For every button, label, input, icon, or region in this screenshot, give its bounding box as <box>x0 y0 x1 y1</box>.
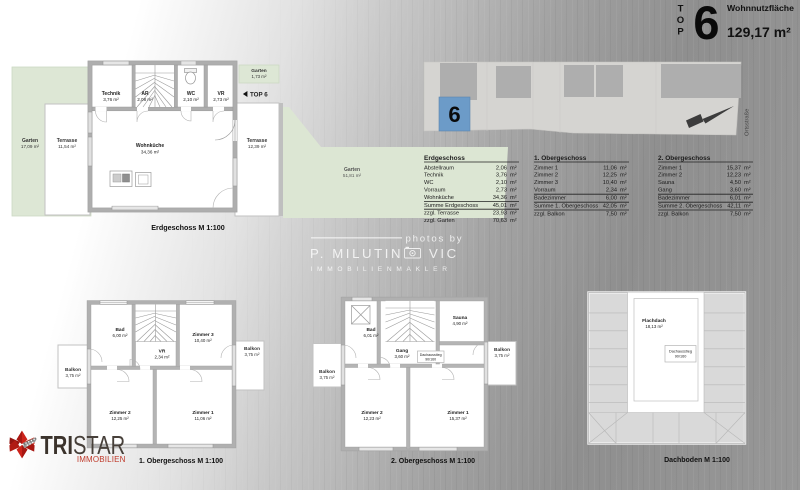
svg-text:18,13 m²: 18,13 m² <box>645 324 663 329</box>
svg-text:m²: m² <box>620 196 627 202</box>
svg-text:6,01: 6,01 <box>730 196 741 202</box>
svg-text:m²: m² <box>510 195 517 201</box>
svg-text:m²: m² <box>510 165 517 171</box>
svg-text:WC: WC <box>424 180 433 186</box>
svg-text:m²: m² <box>744 180 751 186</box>
svg-text:12,25 m²: 12,25 m² <box>111 416 129 421</box>
svg-text:11,06: 11,06 <box>603 165 617 171</box>
svg-text:P. MILUTIN: P. MILUTIN <box>310 246 403 261</box>
svg-text:42,05: 42,05 <box>603 204 617 210</box>
svg-text:m²: m² <box>510 173 517 179</box>
svg-text:2,34 m²: 2,34 m² <box>155 355 170 360</box>
svg-text:3,75 m²: 3,75 m² <box>495 353 510 358</box>
svg-text:7,50: 7,50 <box>606 211 617 217</box>
svg-text:Erdgeschoss: Erdgeschoss <box>424 155 465 162</box>
svg-text:m²: m² <box>744 211 751 217</box>
svg-text:51,81 m²: 51,81 m² <box>343 173 362 178</box>
svg-text:10,40 m²: 10,40 m² <box>194 338 212 343</box>
svg-text:IMMOBILIENMAKLER: IMMOBILIENMAKLER <box>311 266 452 273</box>
svg-text:15,37 m²: 15,37 m² <box>449 416 467 421</box>
svg-text:Badezimmer: Badezimmer <box>534 196 566 202</box>
svg-text:90/160: 90/160 <box>425 358 436 362</box>
svg-text:10,40: 10,40 <box>603 180 617 186</box>
svg-text:m²: m² <box>744 188 751 194</box>
svg-text:2,08 m²: 2,08 m² <box>137 97 153 102</box>
svg-text:6,01 m²: 6,01 m² <box>364 333 379 338</box>
svg-text:m²: m² <box>744 173 751 179</box>
svg-text:m²: m² <box>620 211 627 217</box>
svg-text:VIC: VIC <box>429 246 459 261</box>
svg-text:Zimmer 1: Zimmer 1 <box>658 165 682 171</box>
svg-text:11,54 m²: 11,54 m² <box>58 144 76 149</box>
svg-text:3,75 m²: 3,75 m² <box>66 373 81 378</box>
svg-text:12,23 m²: 12,23 m² <box>363 416 381 421</box>
svg-text:Wohnküche: Wohnküche <box>424 195 454 201</box>
svg-text:45,01: 45,01 <box>493 203 507 209</box>
svg-text:6,00: 6,00 <box>606 196 617 202</box>
svg-text:3,76 m²: 3,76 m² <box>103 97 119 102</box>
svg-text:129,17 m²: 129,17 m² <box>727 24 791 40</box>
svg-text:Dachausstieg: Dachausstieg <box>669 350 692 354</box>
svg-text:zzgl. Balkon: zzgl. Balkon <box>534 211 565 217</box>
svg-text:O: O <box>677 15 684 26</box>
svg-text:Summe 1. Obergeschoss: Summe 1. Obergeschoss <box>534 204 598 210</box>
svg-text:6: 6 <box>693 0 719 49</box>
svg-text:23,93: 23,93 <box>493 211 507 217</box>
svg-text:Summe Erdgeschoss: Summe Erdgeschoss <box>424 203 478 209</box>
svg-text:6,00 m²: 6,00 m² <box>113 333 128 338</box>
svg-text:2,73: 2,73 <box>496 188 507 194</box>
svg-text:m²: m² <box>744 165 751 171</box>
svg-text:3,60: 3,60 <box>730 188 741 194</box>
svg-text:1. Obergeschoss M 1:100: 1. Obergeschoss M 1:100 <box>139 458 223 465</box>
svg-text:34,36: 34,36 <box>493 195 507 201</box>
svg-text:Abstellraum: Abstellraum <box>424 165 454 171</box>
svg-text:2,10: 2,10 <box>496 180 507 186</box>
svg-text:Vorraum: Vorraum <box>534 188 556 194</box>
svg-text:Ortsstraße: Ortsstraße <box>745 109 751 136</box>
svg-text:6: 6 <box>448 102 460 127</box>
svg-text:m²: m² <box>510 218 517 224</box>
svg-text:Zimmer 3: Zimmer 3 <box>534 180 558 186</box>
svg-text:12,25: 12,25 <box>603 173 617 179</box>
svg-text:1. Obergeschoss: 1. Obergeschoss <box>534 155 587 162</box>
svg-text:m²: m² <box>744 196 751 202</box>
svg-text:m²: m² <box>510 180 517 186</box>
svg-text:17,09 m²: 17,09 m² <box>21 144 40 149</box>
svg-text:3,60 m²: 3,60 m² <box>395 354 410 359</box>
svg-text:Gang: Gang <box>658 188 672 194</box>
svg-text:4,90 m²: 4,90 m² <box>453 321 468 326</box>
svg-text:2. Obergeschoss M 1:100: 2. Obergeschoss M 1:100 <box>391 458 475 465</box>
svg-text:3,75 m²: 3,75 m² <box>245 352 260 357</box>
svg-text:2,06: 2,06 <box>496 165 507 171</box>
svg-text:m²: m² <box>510 188 517 194</box>
svg-text:photos by: photos by <box>406 234 464 245</box>
svg-text:15,37: 15,37 <box>727 165 741 171</box>
svg-text:2,73 m²: 2,73 m² <box>213 97 229 102</box>
svg-text:Badezimmer: Badezimmer <box>658 196 690 202</box>
svg-text:2. Obergeschoss: 2. Obergeschoss <box>658 155 711 162</box>
svg-text:zzgl. Garten: zzgl. Garten <box>424 218 455 224</box>
svg-text:T: T <box>678 4 684 15</box>
svg-text:Zimmer 2: Zimmer 2 <box>658 173 682 179</box>
svg-text:zzgl. Terrasse: zzgl. Terrasse <box>424 211 459 217</box>
svg-text:m²: m² <box>620 204 627 210</box>
svg-text:m²: m² <box>744 204 751 210</box>
svg-text:m²: m² <box>620 165 627 171</box>
svg-text:70,63: 70,63 <box>493 218 507 224</box>
svg-text:m²: m² <box>620 188 627 194</box>
svg-text:m²: m² <box>620 180 627 186</box>
svg-text:zzgl. Balkon: zzgl. Balkon <box>658 211 689 217</box>
svg-text:1,73 m²: 1,73 m² <box>252 74 267 79</box>
svg-text:TOP 6: TOP 6 <box>250 92 268 99</box>
svg-text:Sauna: Sauna <box>658 180 675 186</box>
svg-text:2,10 m²: 2,10 m² <box>183 97 199 102</box>
svg-text:3,75 m²: 3,75 m² <box>320 375 335 380</box>
svg-text:11,06 m²: 11,06 m² <box>194 416 212 421</box>
svg-text:m²: m² <box>510 203 517 209</box>
svg-text:Technik: Technik <box>424 173 443 179</box>
svg-text:2,34: 2,34 <box>606 188 617 194</box>
svg-text:4,50: 4,50 <box>730 180 741 186</box>
svg-text:m²: m² <box>620 173 627 179</box>
svg-text:90/160: 90/160 <box>675 355 687 359</box>
svg-text:Dachausstieg: Dachausstieg <box>420 353 442 357</box>
svg-text:Zimmer 1: Zimmer 1 <box>534 165 558 171</box>
svg-text:Wohnküche: Wohnküche <box>136 143 164 149</box>
svg-text:34,36 m²: 34,36 m² <box>141 150 160 155</box>
svg-text:Zimmer 2: Zimmer 2 <box>534 173 558 179</box>
svg-text:m²: m² <box>510 211 517 217</box>
svg-text:12,39 m²: 12,39 m² <box>248 144 267 149</box>
svg-text:Wohnnutzfläche: Wohnnutzfläche <box>727 3 794 13</box>
svg-text:Erdgeschoss M 1:100: Erdgeschoss M 1:100 <box>151 223 225 232</box>
svg-text:Summe 2. Obergeschoss: Summe 2. Obergeschoss <box>658 204 722 210</box>
svg-text:IMMOBILIEN: IMMOBILIEN <box>77 455 126 464</box>
svg-text:Vorraum: Vorraum <box>424 188 446 194</box>
svg-text:3,76: 3,76 <box>496 173 507 179</box>
svg-text:Dachboden M 1:100: Dachboden M 1:100 <box>664 457 730 464</box>
svg-text:P: P <box>677 27 684 38</box>
svg-text:42,11: 42,11 <box>727 204 741 210</box>
svg-text:7,50: 7,50 <box>730 211 741 217</box>
svg-text:12,23: 12,23 <box>727 173 741 179</box>
